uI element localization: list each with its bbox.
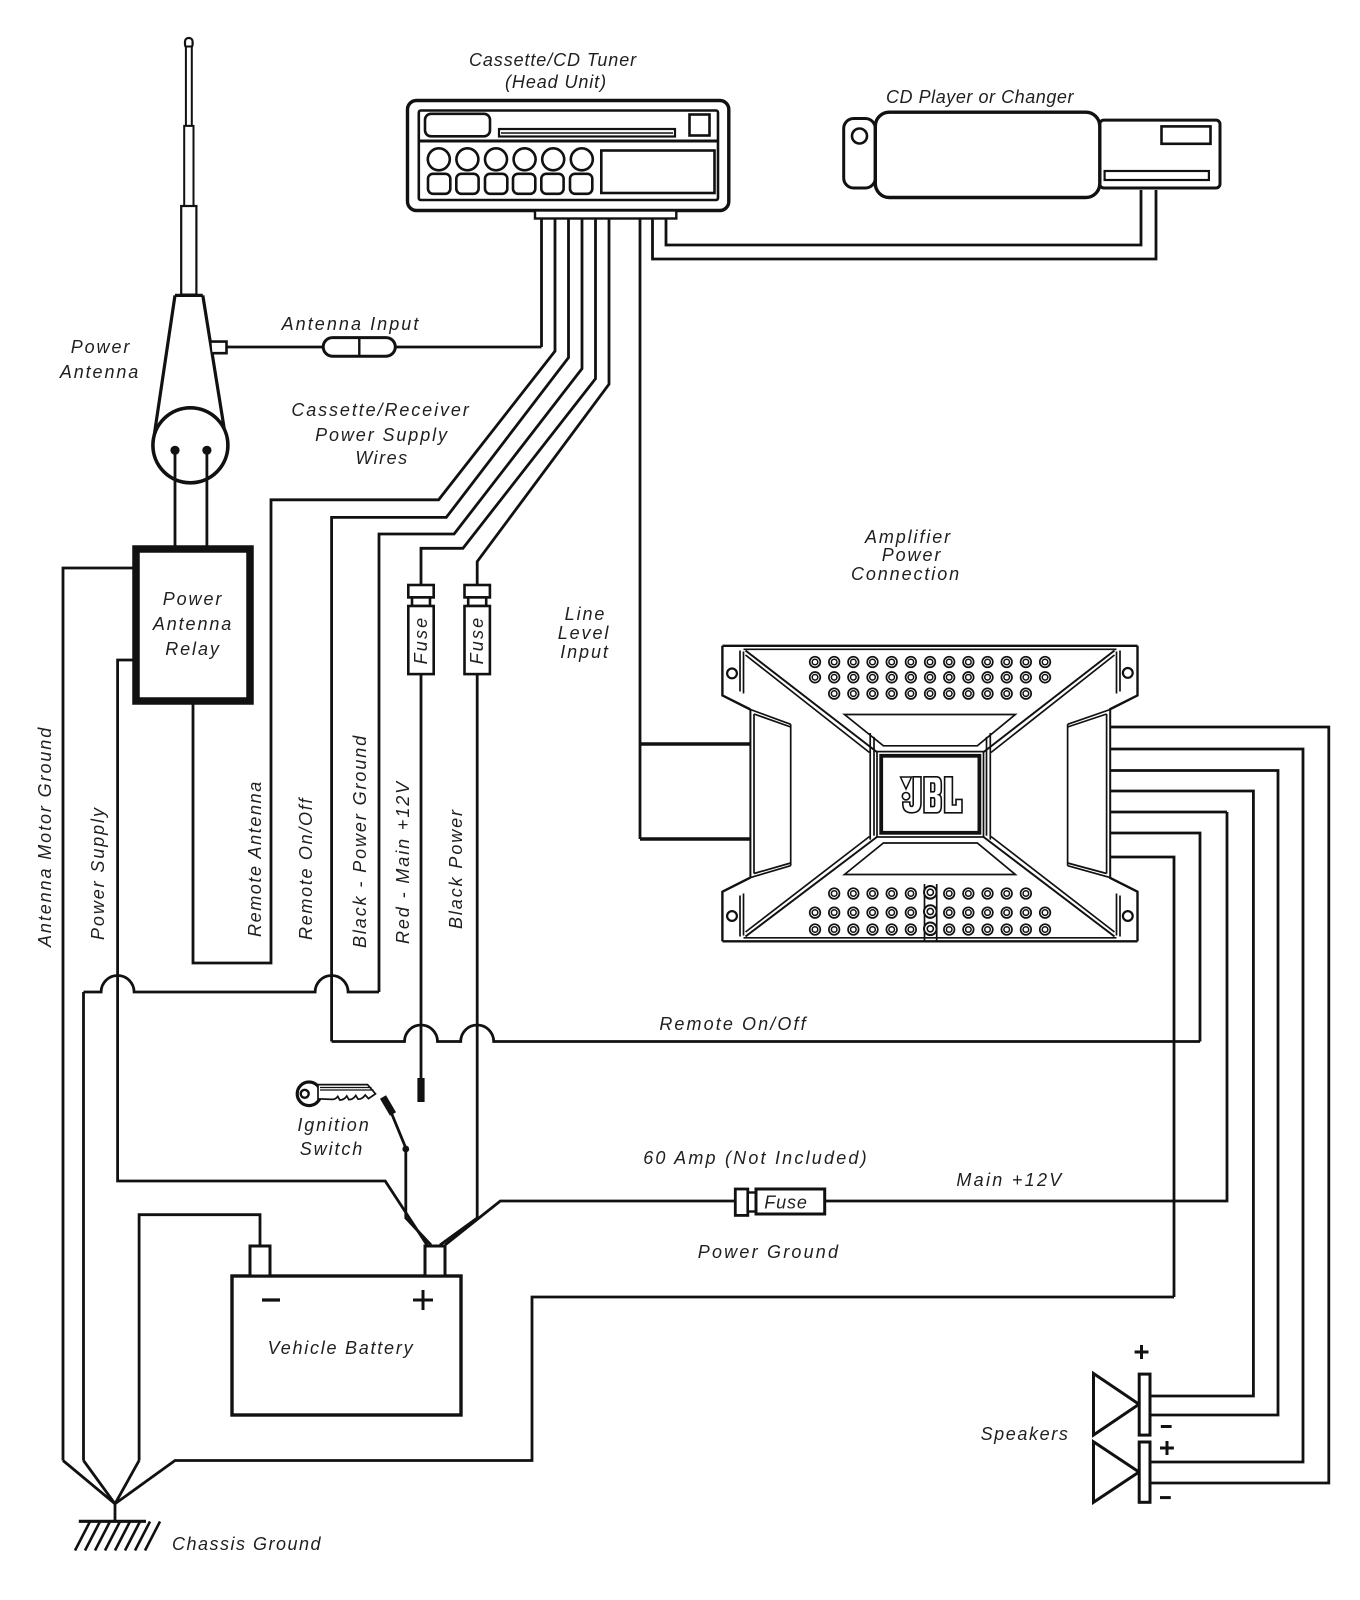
svg-text:Red - Main +12V: Red - Main +12V — [393, 780, 413, 944]
svg-text:Input: Input — [560, 642, 610, 662]
svg-text:Antenna: Antenna — [59, 362, 140, 382]
svg-text:Power Supply: Power Supply — [88, 806, 108, 940]
svg-text:Line: Line — [565, 604, 607, 624]
svg-text:Antenna: Antenna — [152, 614, 233, 634]
svg-text:Fuse: Fuse — [411, 616, 431, 665]
svg-text:Power: Power — [71, 337, 132, 357]
svg-text:Power Ground: Power Ground — [698, 1242, 840, 1262]
svg-text:Amplifier: Amplifier — [864, 527, 952, 547]
svg-text:Remote On/Off: Remote On/Off — [659, 1014, 807, 1034]
svg-text:Speakers: Speakers — [981, 1424, 1070, 1444]
svg-text:Power: Power — [882, 545, 943, 565]
svg-text:Remote On/Off: Remote On/Off — [296, 797, 316, 940]
svg-text:Level: Level — [558, 623, 611, 643]
svg-text:Switch: Switch — [300, 1139, 364, 1159]
svg-text:Antenna Motor Ground: Antenna Motor Ground — [35, 726, 55, 948]
svg-text:Connection: Connection — [851, 564, 961, 584]
svg-text:Antenna Input: Antenna Input — [281, 314, 421, 334]
svg-text:60 Amp (Not Included): 60 Amp (Not Included) — [643, 1148, 869, 1168]
svg-text:Fuse: Fuse — [467, 616, 487, 665]
svg-text:Cassette/Receiver: Cassette/Receiver — [291, 400, 470, 420]
svg-text:Black - Power Ground: Black - Power Ground — [350, 734, 370, 948]
svg-text:Vehicle Battery: Vehicle Battery — [268, 1338, 415, 1358]
svg-text:Black Power: Black Power — [446, 808, 466, 929]
svg-text:Relay: Relay — [165, 639, 221, 659]
svg-text:Ignition: Ignition — [297, 1115, 370, 1135]
svg-text:Fuse: Fuse — [764, 1193, 808, 1213]
svg-text:Power: Power — [163, 589, 224, 609]
svg-text:CD Player or Changer: CD Player or Changer — [886, 87, 1075, 107]
svg-text:Main +12V: Main +12V — [956, 1170, 1063, 1190]
svg-text:Remote Antenna: Remote Antenna — [245, 780, 265, 937]
svg-text:Power Supply: Power Supply — [315, 425, 449, 445]
svg-text:Chassis Ground: Chassis Ground — [172, 1534, 322, 1554]
svg-text:(Head Unit): (Head Unit) — [505, 72, 607, 92]
svg-text:Wires: Wires — [355, 448, 408, 468]
svg-text:Cassette/CD Tuner: Cassette/CD Tuner — [469, 50, 637, 70]
